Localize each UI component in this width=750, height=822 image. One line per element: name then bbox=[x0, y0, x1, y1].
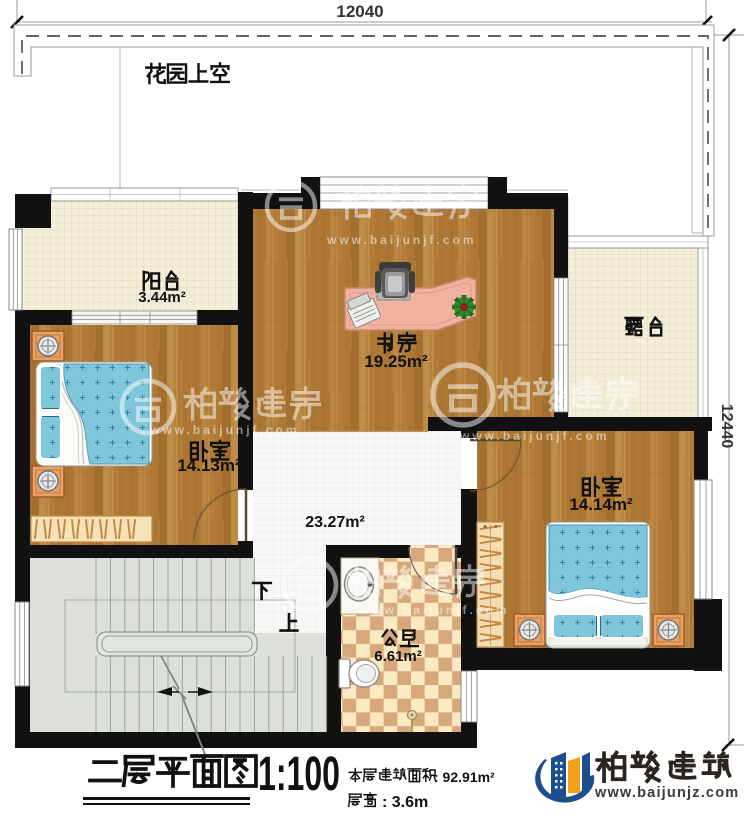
svg-text:www.baijunjf.com: www.baijunjf.com bbox=[149, 423, 300, 437]
svg-text:12440: 12440 bbox=[718, 404, 735, 449]
svg-text:www.baijunjf.com: www.baijunjf.com bbox=[326, 233, 477, 247]
svg-text:www.baijunjz.com: www.baijunjz.com bbox=[594, 785, 739, 801]
svg-text:12040: 12040 bbox=[336, 2, 383, 21]
svg-text:6.61m²: 6.61m² bbox=[374, 648, 422, 665]
svg-text:14.13m²: 14.13m² bbox=[177, 456, 241, 475]
svg-text:www.baijunjf.com: www.baijunjf.com bbox=[459, 429, 610, 443]
svg-text:: 92.91m²: : 92.91m² bbox=[434, 769, 495, 785]
svg-text:14.14m²: 14.14m² bbox=[569, 495, 633, 514]
svg-text:www.baijunjf.com: www.baijunjf.com bbox=[359, 603, 510, 617]
svg-text:19.25m²: 19.25m² bbox=[364, 352, 428, 371]
svg-text:1:100: 1:100 bbox=[258, 748, 340, 801]
svg-text:3.44m²: 3.44m² bbox=[138, 289, 186, 306]
svg-text:23.27m²: 23.27m² bbox=[305, 514, 365, 531]
svg-text:: 3.6m: : 3.6m bbox=[382, 794, 428, 811]
